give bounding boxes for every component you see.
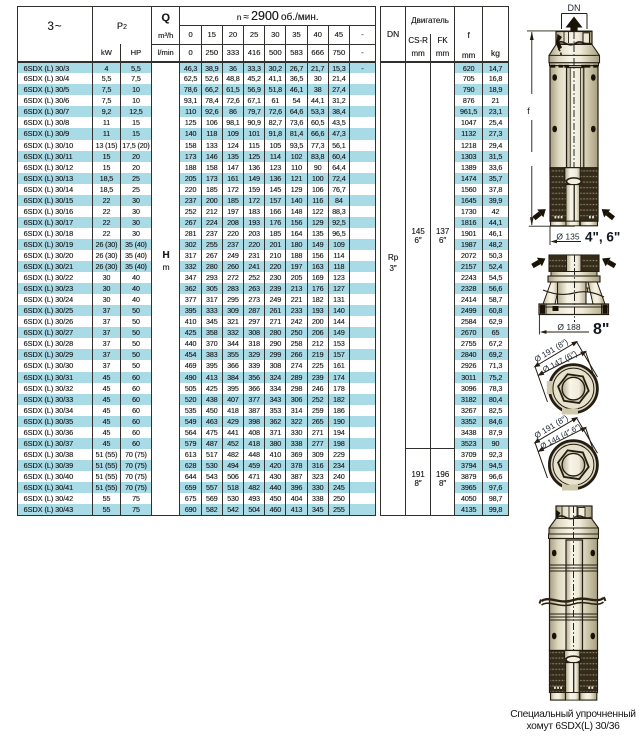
svg-text:Ø 135: Ø 135: [556, 232, 579, 242]
svg-text:Ø 188: Ø 188: [557, 322, 580, 332]
svg-text:f: f: [527, 106, 530, 117]
svg-text:4", 6": 4", 6": [585, 230, 620, 245]
svg-text:8": 8": [593, 321, 609, 338]
svg-text:DN: DN: [568, 3, 581, 13]
